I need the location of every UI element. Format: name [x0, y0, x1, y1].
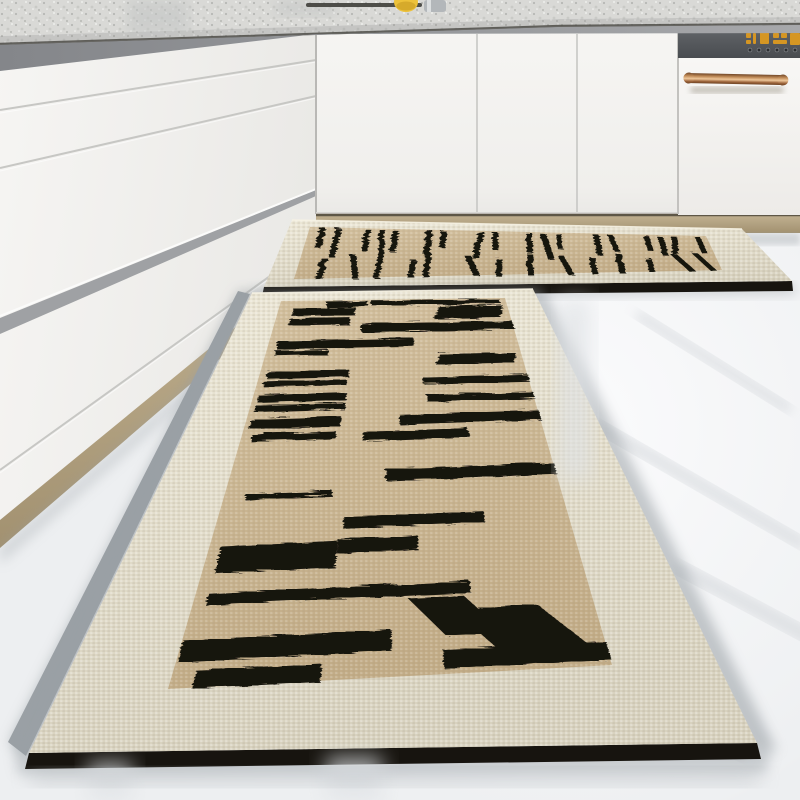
dishwasher — [678, 27, 800, 215]
indicator-icon — [746, 33, 751, 38]
mat-stripe — [433, 304, 502, 318]
mat-stripe — [290, 306, 354, 314]
wall-reflection-patch — [128, 0, 188, 34]
handle-shadow — [690, 87, 784, 93]
small-kitchen-mat — [254, 220, 796, 299]
panel-button — [793, 48, 797, 52]
panel-button — [748, 48, 752, 52]
floor-reflection — [560, 300, 590, 480]
indicator-icon — [773, 40, 787, 44]
lemon-shade — [396, 2, 415, 11]
panel-button — [766, 48, 770, 52]
kitchen-product-photo — [0, 0, 800, 800]
wall-reflection-patch — [276, 0, 334, 16]
mat-stripe — [526, 253, 533, 274]
panel-button — [784, 48, 788, 52]
indicator-icon — [753, 33, 756, 44]
kitchen-scene — [0, 0, 800, 800]
mat-stripe — [434, 351, 515, 363]
copper-handle-bar — [687, 73, 785, 85]
mat-stripe — [491, 231, 497, 249]
indicator-icon — [781, 33, 787, 38]
indicator-icon — [746, 40, 751, 44]
indicator-icon — [773, 33, 779, 38]
mat-stripe — [525, 232, 532, 251]
mat-stripe — [325, 300, 367, 306]
mat-front-floor-shadow — [30, 770, 760, 784]
indicator-icon — [790, 33, 800, 45]
panel-button — [775, 48, 779, 52]
panel-button — [757, 48, 761, 52]
mat-stripe — [287, 316, 348, 324]
indicator-icon — [760, 32, 769, 44]
mat-stripe — [494, 257, 500, 274]
faucet-highlight — [427, 0, 431, 12]
